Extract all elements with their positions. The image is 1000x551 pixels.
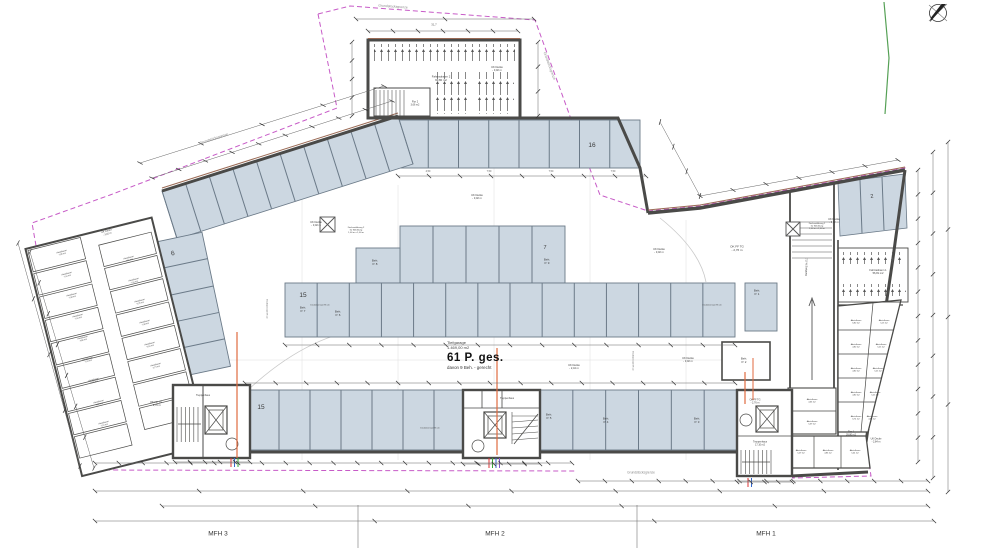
- floorplan-canvas: Tiefgarage 1.469,00 m2 61 P. ges. davon …: [0, 0, 1000, 551]
- bike-room-stair: [374, 88, 430, 116]
- stall-beh-p2-outline: [722, 342, 770, 380]
- green-boundary-line: [884, 2, 889, 114]
- stair-core-mfh2: [463, 390, 540, 458]
- right-wing-rooms: [788, 300, 901, 468]
- bike-racks-mid1: [432, 72, 470, 114]
- stall-beh-p1-outline: [745, 283, 777, 331]
- bike-racks-mid2: [476, 72, 514, 114]
- stair-core-mfh3: [173, 385, 250, 458]
- floorplan-drawing: [0, 0, 1000, 551]
- bike-racks-top: [374, 44, 515, 61]
- bike-room-1: [838, 248, 908, 302]
- north-arrow-icon: [929, 4, 947, 22]
- entry-ramp: [792, 222, 832, 380]
- bike-room: [374, 44, 515, 116]
- mfh-zone-dividers: [358, 505, 637, 548]
